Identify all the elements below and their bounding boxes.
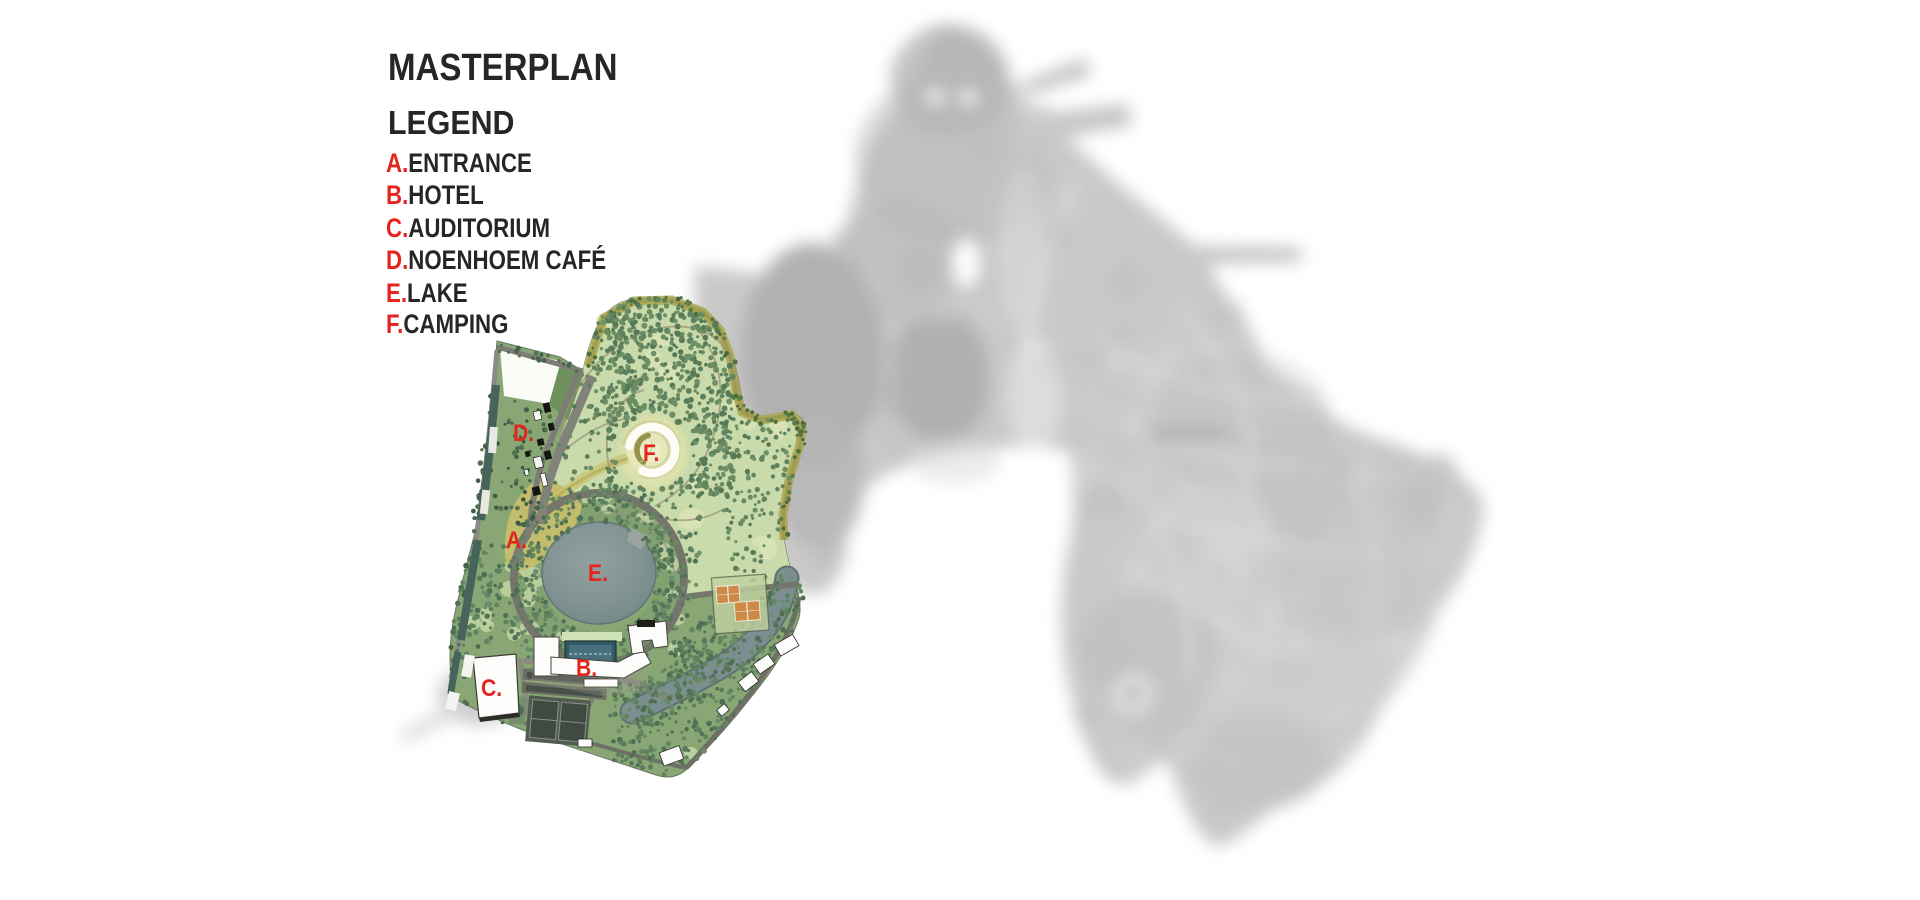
svg-text:E.LAKE: E.LAKE	[386, 279, 468, 308]
svg-text:D.: D.	[513, 420, 534, 447]
svg-text:B.: B.	[576, 655, 597, 682]
svg-text:F.CAMPING: F.CAMPING	[386, 310, 508, 339]
svg-text:C.: C.	[481, 675, 502, 702]
svg-text:F.: F.	[643, 440, 659, 467]
svg-text:C.AUDITORIUM: C.AUDITORIUM	[386, 214, 550, 243]
svg-text:D.NOENHOEM CAFÉ: D.NOENHOEM CAFÉ	[386, 245, 606, 275]
svg-text:B.HOTEL: B.HOTEL	[386, 181, 484, 210]
svg-text:A.ENTRANCE: A.ENTRANCE	[386, 149, 532, 178]
svg-text:A.: A.	[506, 527, 527, 554]
svg-text:MASTERPLAN: MASTERPLAN	[388, 46, 618, 89]
svg-text:LEGEND: LEGEND	[388, 104, 514, 141]
svg-text:E.: E.	[588, 560, 608, 587]
